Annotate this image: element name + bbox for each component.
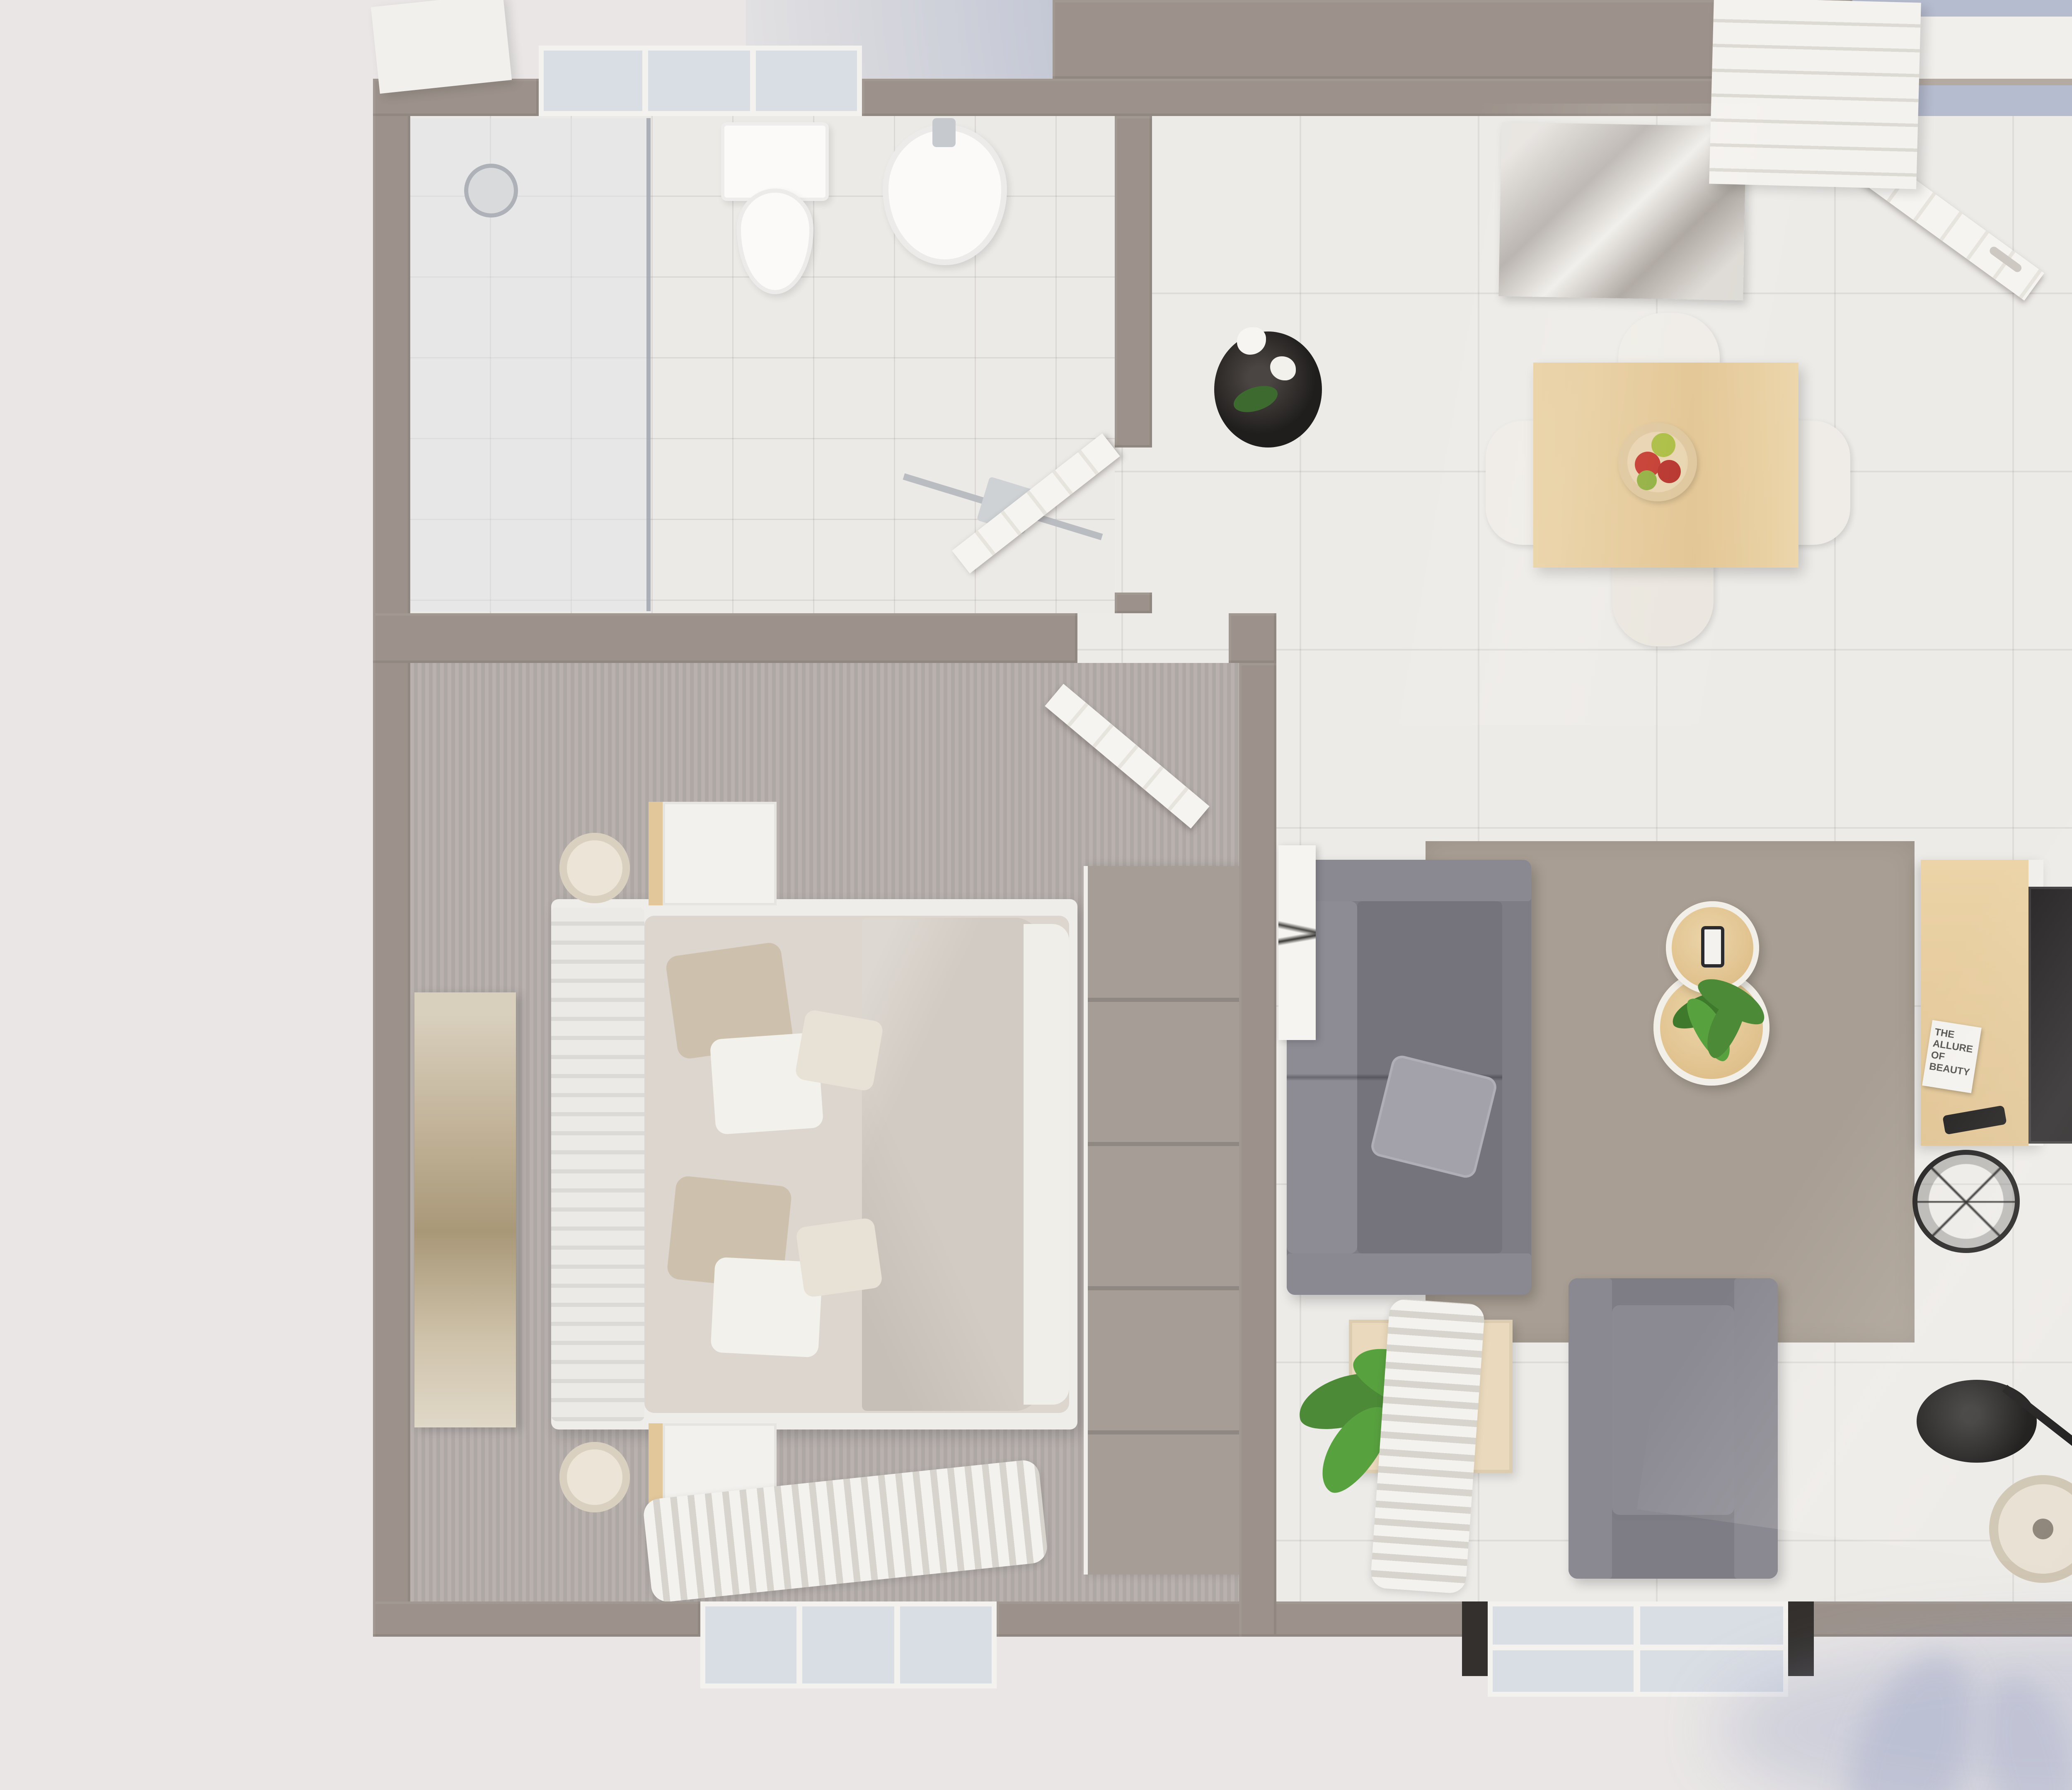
living-sliding-window <box>1488 1601 1788 1697</box>
wall-bathroom-bedroom1-right <box>1229 613 1276 663</box>
bedroom1-artwork-gold-abstract <box>414 992 516 1427</box>
wall-bedroom1-living <box>1239 663 1276 1637</box>
bathroom-window-mullion-2 <box>750 46 756 116</box>
bedroom1-pillow-knit-1 <box>794 1009 884 1092</box>
wall-bathroom-right-upper <box>1115 116 1152 447</box>
armchair-armrest-right <box>1734 1278 1778 1579</box>
plant-shadow-bottom-2 <box>1969 1667 2072 1790</box>
tv-sideboard <box>1921 860 2043 1146</box>
bedroom1-wall-lamp-bottom <box>559 1442 630 1512</box>
living-window-post-right <box>1788 1601 1814 1676</box>
bedroom-left-window-mullion-2 <box>894 1601 900 1688</box>
living-window-post-left <box>1462 1601 1488 1676</box>
bedroom1-duvet-edge-white <box>1024 924 1069 1405</box>
mountain-artwork <box>1498 122 1746 300</box>
bathroom-window-mullion <box>642 46 648 116</box>
porch-roof-ridged <box>1709 0 1921 189</box>
wall-bathroom-bedroom1-left <box>373 613 1077 663</box>
bedroom1-wall-lamp-top <box>559 833 630 903</box>
bedroom-left-window-mullion <box>796 1601 802 1688</box>
shower-head-icon <box>464 164 518 218</box>
washbasin-faucet-icon <box>932 118 956 147</box>
bedroom1-wardrobe <box>1084 866 1239 1575</box>
floor-lamp-bulb-icon <box>2033 1519 2053 1539</box>
bedroom1-nightstand-top <box>649 802 777 905</box>
wall-left <box>373 79 410 1637</box>
fruit-apple-green <box>1637 470 1657 490</box>
sofa-armrest-top <box>1287 860 1531 901</box>
plant-shadow-bottom <box>1823 1637 1998 1790</box>
wire-basket <box>1912 1150 2020 1253</box>
wall-top-center-segment <box>862 79 1857 116</box>
shower-area <box>410 118 651 611</box>
armchair-seat-cushion <box>1612 1305 1734 1521</box>
armchair-armrest-left <box>1569 1278 1612 1579</box>
apartment-floorplan-render: THE ALLURE OF BEAUTY <box>0 0 2072 1790</box>
floor-lamp-base <box>1917 1380 2037 1463</box>
bedroom-left-window <box>700 1601 997 1688</box>
fruit-apple-red-2 <box>1658 460 1681 483</box>
magazine: THE ALLURE OF BEAUTY <box>1922 1020 1982 1093</box>
sofa-armrest-bottom <box>1287 1253 1531 1295</box>
wall-bottom-seg-1 <box>373 1601 700 1637</box>
magazine-title: THE ALLURE OF BEAUTY <box>1928 1026 1976 1079</box>
bedroom1-headboard-slatted <box>551 907 644 1421</box>
bedroom1-pillow-knit-2 <box>795 1217 883 1298</box>
fruit-pear-green <box>1651 433 1675 457</box>
roof-slab-top-left <box>371 0 512 94</box>
living-curtain <box>1370 1298 1485 1594</box>
wall-bathroom-right-lower <box>1115 593 1152 613</box>
living-artwork-branches <box>1278 845 1316 1040</box>
bedroom1-duvet-fold <box>862 918 1040 1411</box>
living-window-mullion-h <box>1488 1645 1788 1650</box>
wall-bottom-seg-3 <box>1801 1601 2072 1637</box>
smartphone <box>1701 926 1724 968</box>
bathroom-window <box>539 46 862 116</box>
wall-tv <box>2028 887 2072 1144</box>
